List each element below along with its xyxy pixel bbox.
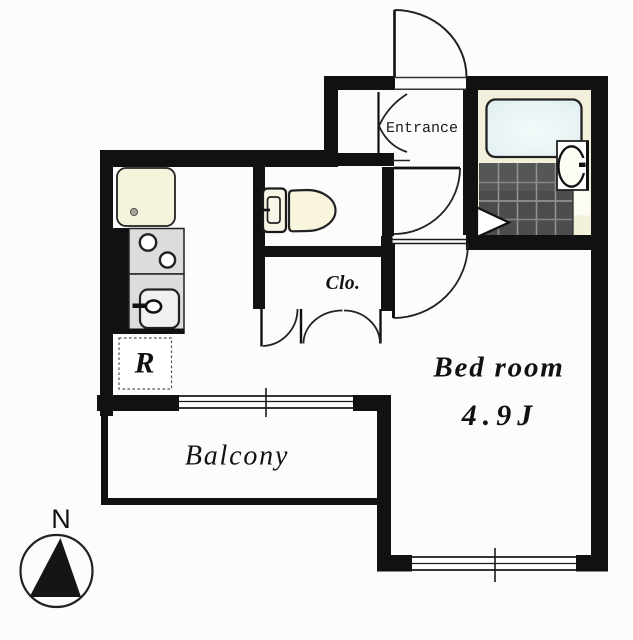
svg-text:Entrance: Entrance bbox=[386, 120, 458, 137]
svg-text:4.9J: 4.9J bbox=[461, 399, 539, 432]
svg-text:Balcony: Balcony bbox=[185, 441, 289, 472]
svg-text:R: R bbox=[133, 347, 154, 380]
svg-text:Bed room: Bed room bbox=[432, 352, 564, 384]
svg-text:N: N bbox=[51, 504, 71, 534]
svg-text:Clo.: Clo. bbox=[326, 273, 361, 294]
